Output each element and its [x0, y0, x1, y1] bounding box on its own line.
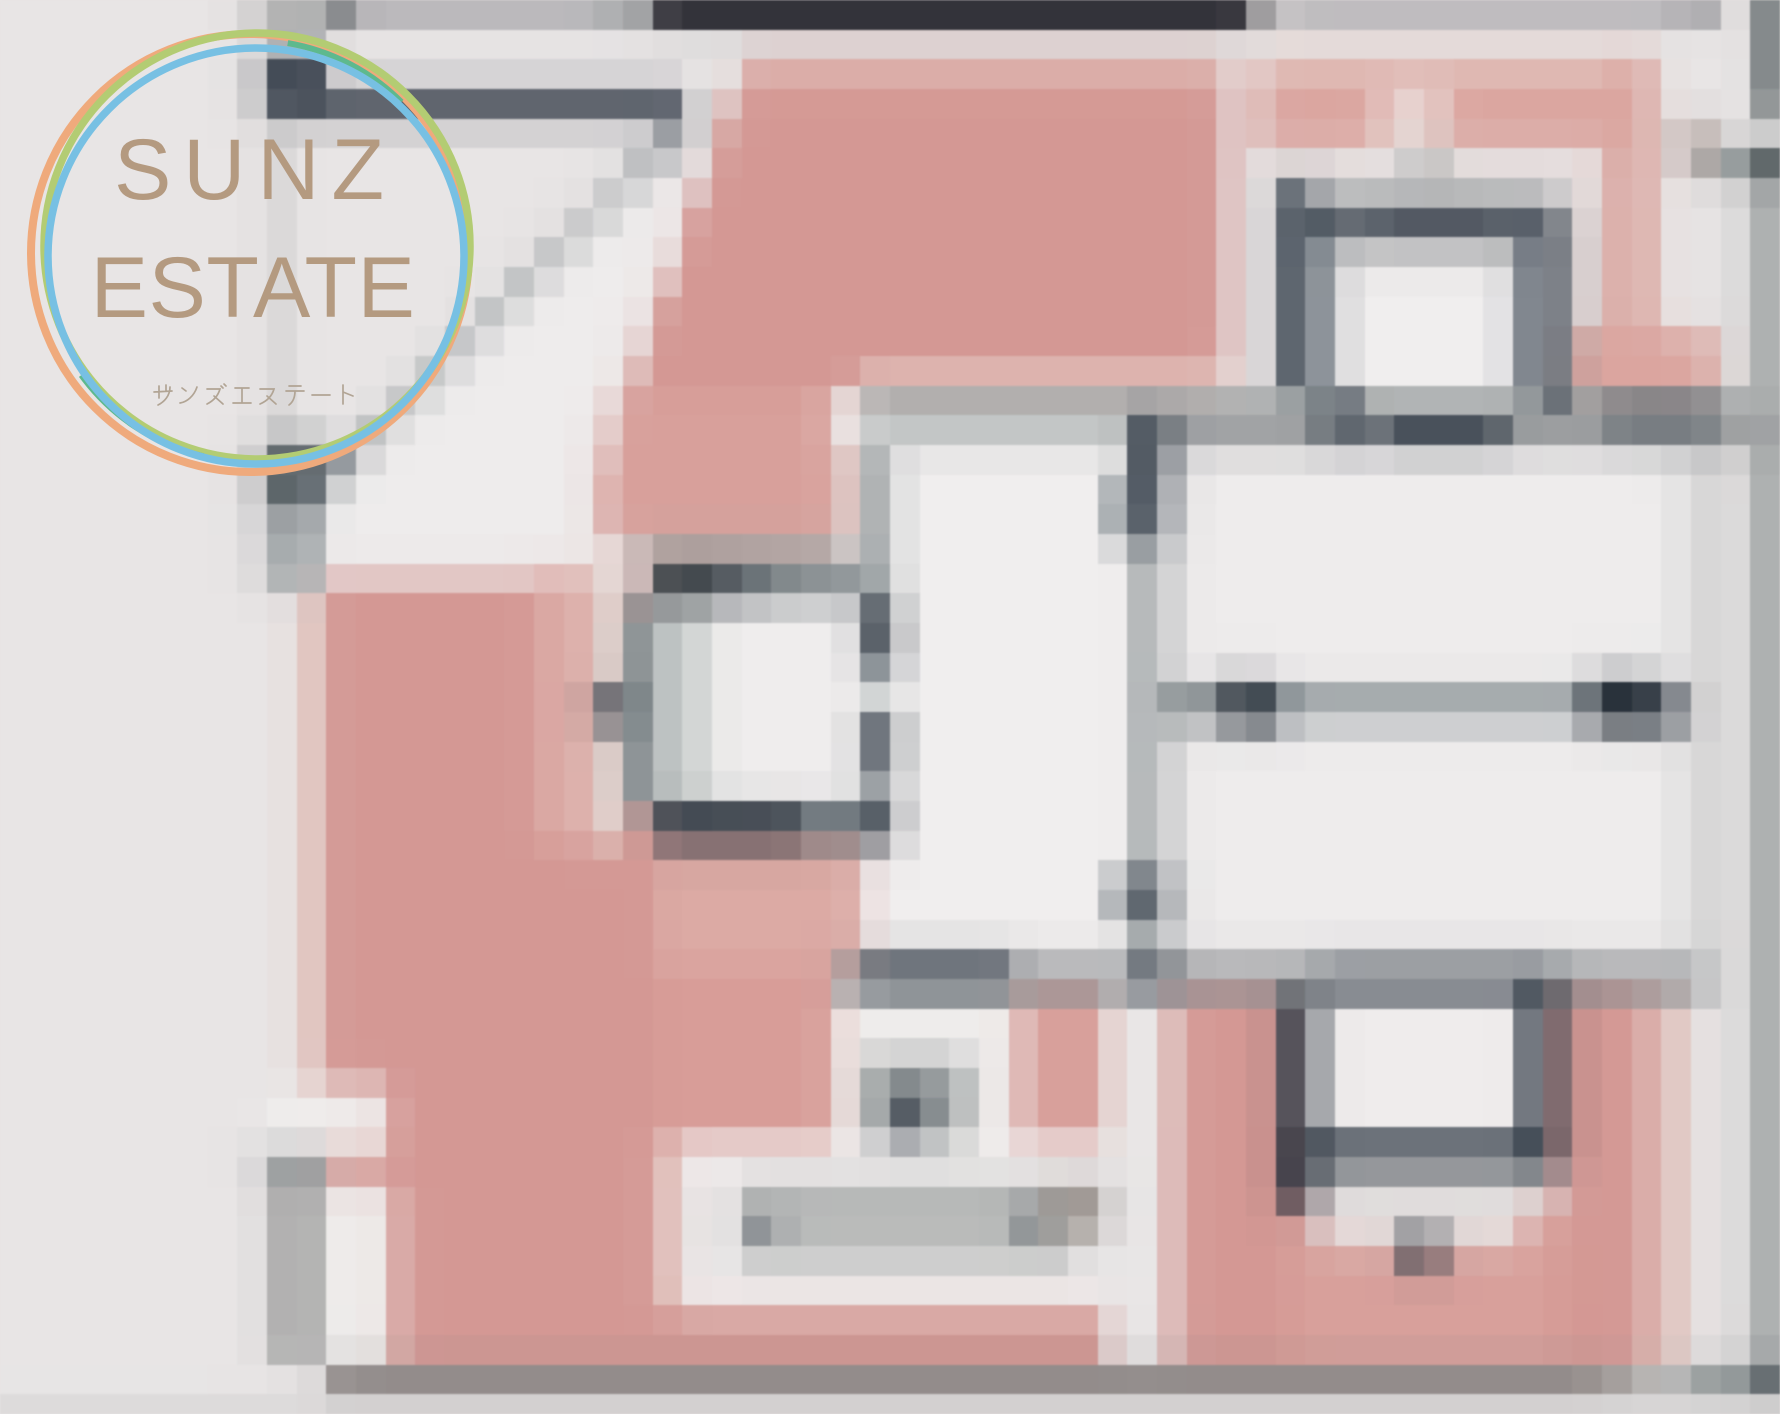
svg-text:ESTATE: ESTATE — [91, 240, 416, 336]
svg-text:SUNZ: SUNZ — [114, 122, 396, 218]
